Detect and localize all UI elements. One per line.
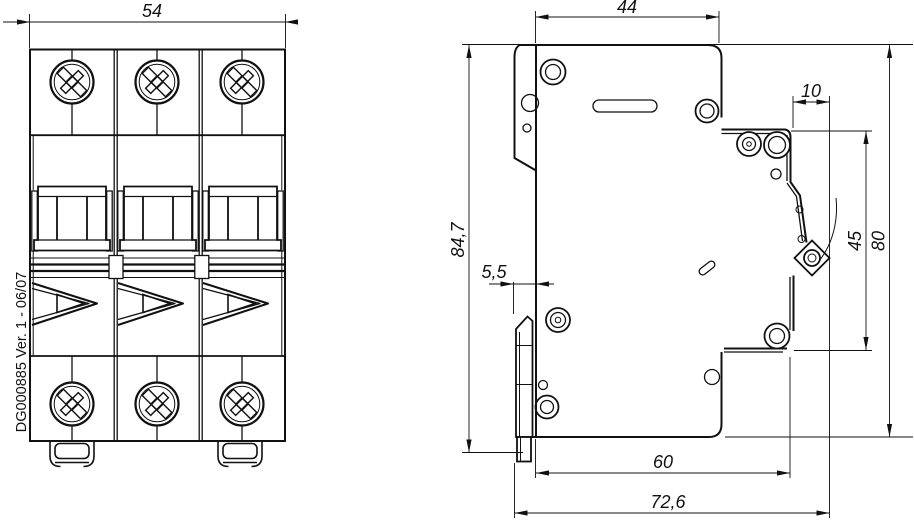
terminal-screw-top	[221, 61, 264, 104]
band-junction-clip	[109, 256, 123, 279]
dimension-label: 54	[142, 1, 162, 21]
din-clip-left	[50, 441, 94, 467]
terminal-screw-bottom	[51, 383, 94, 426]
arrowhead	[285, 19, 298, 24]
dimension-label: 84,7	[448, 222, 468, 258]
upper-flange	[515, 45, 537, 171]
terminal-screw-bottom	[221, 383, 264, 426]
terminal-screw-top	[136, 61, 179, 104]
toggle-handle	[203, 187, 283, 252]
terminal-direction-mark	[203, 283, 268, 325]
terminal-span-dimension: 45	[791, 131, 872, 351]
dimension-label: 72,6	[650, 492, 686, 512]
terminal-screw-bottom	[136, 383, 179, 426]
terminal-pitch-dimension: 10	[793, 81, 830, 518]
latch-tail	[517, 437, 531, 462]
clamp-plate	[795, 241, 830, 276]
top-edge	[520, 45, 722, 118]
vent-slot	[593, 100, 657, 112]
side-top-width-dimension: 44	[536, 0, 720, 43]
drawing-svg: 54	[0, 0, 914, 528]
technical-drawing-page: 54	[0, 0, 914, 528]
dimension-label: 44	[617, 0, 637, 17]
terminal-direction-mark	[32, 283, 97, 325]
din-latch	[516, 317, 533, 462]
dimension-label: 10	[801, 81, 821, 101]
bottom-edge	[520, 352, 722, 437]
dimension-label: 80	[869, 231, 889, 251]
pole-module-3	[203, 50, 283, 441]
part-code-label: DG000885 Ver. 1 - 06/07	[14, 272, 30, 432]
front-view: 54	[3, 1, 298, 467]
din-clip-right	[218, 441, 262, 467]
pole-module-2	[118, 50, 198, 441]
arrowhead	[17, 19, 30, 24]
band-junction-clip	[195, 256, 209, 279]
dimension-label: 60	[653, 452, 673, 472]
dimension-label: 45	[845, 230, 865, 251]
rivets-and-holes	[522, 60, 821, 419]
terminal-direction-mark	[118, 283, 183, 325]
base-depth-dimension: 60	[536, 357, 791, 478]
indicator-capsule	[698, 260, 716, 277]
pole-module-1	[32, 50, 112, 441]
toggle-handle	[118, 187, 198, 252]
front-width-dimension: 54	[3, 1, 298, 48]
dimension-label: 5,5	[481, 262, 507, 282]
din-offset-dimension: 5,5	[481, 262, 554, 314]
toggle-handle	[32, 187, 112, 252]
side-body	[515, 45, 837, 462]
side-view: 44 84,7 5,5 10 45 80	[448, 0, 913, 518]
terminal-screw-top	[51, 61, 94, 104]
faceplate-band	[31, 256, 284, 279]
